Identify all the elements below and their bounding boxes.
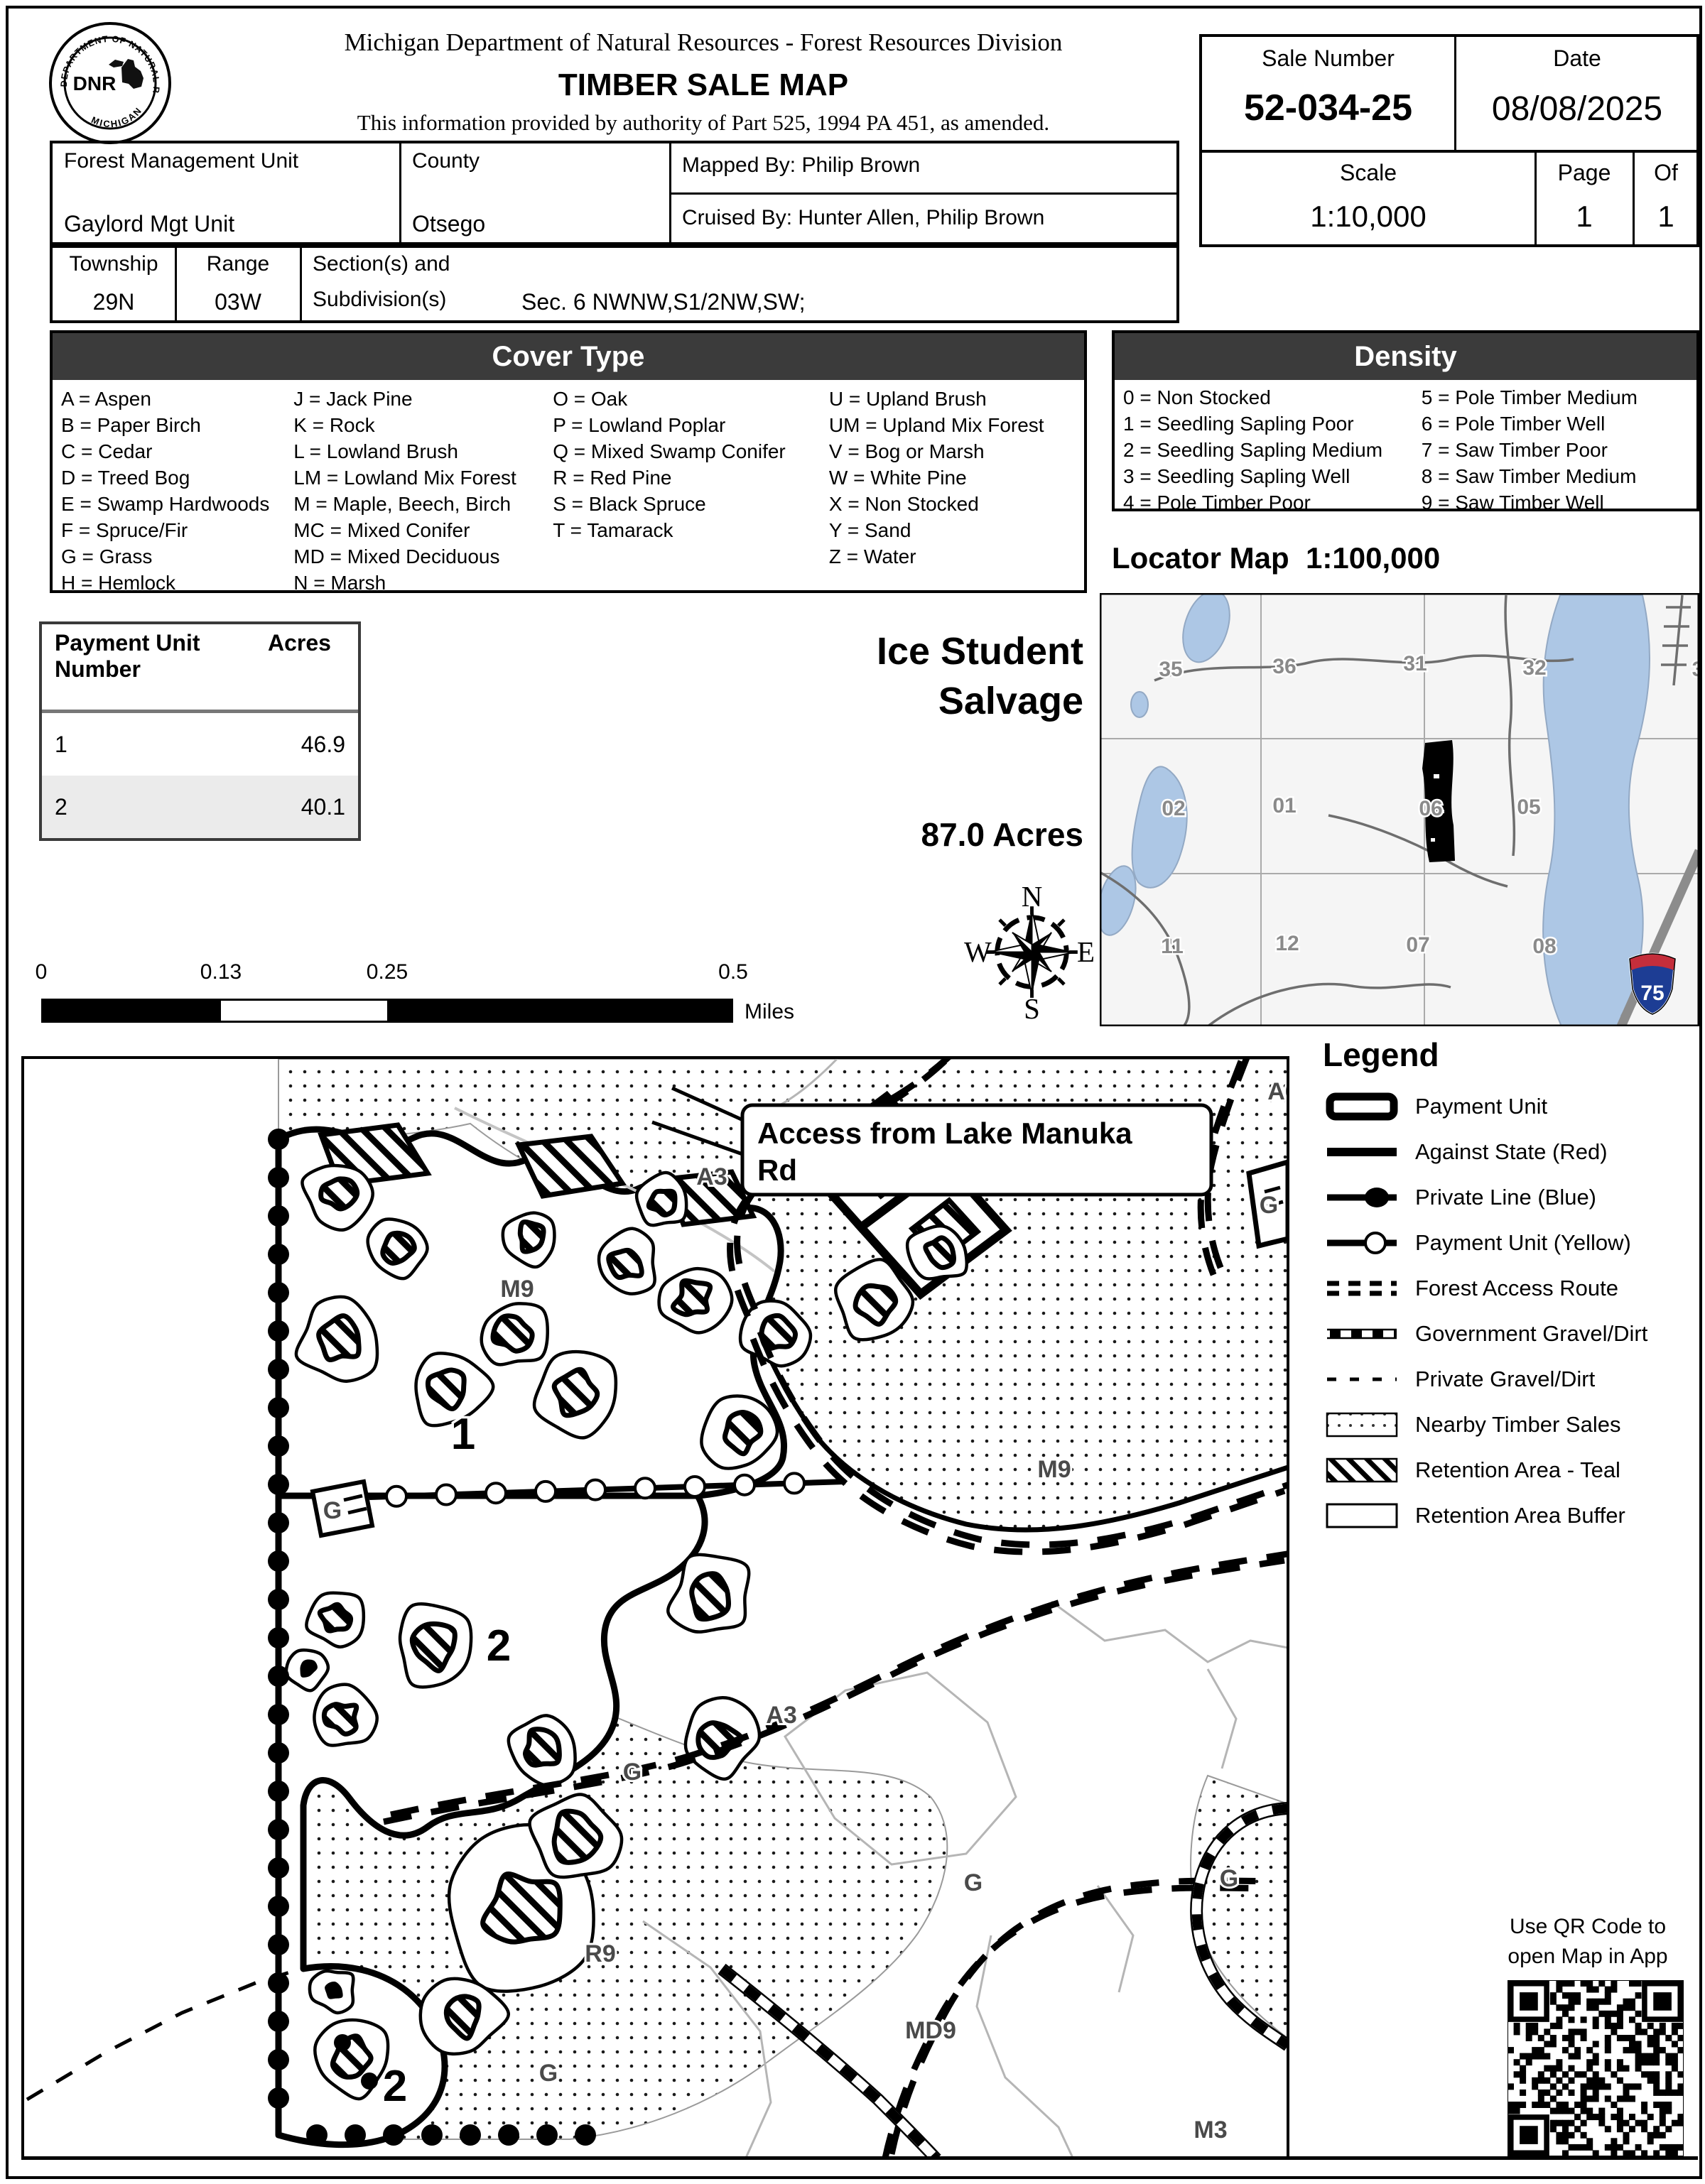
payment-unit-yellow-icon [1323, 1227, 1401, 1259]
map-label: M3 [1193, 2117, 1227, 2144]
svg-text:31: 31 [1403, 652, 1427, 675]
sale-title: Ice StudentSalvage [710, 626, 1083, 726]
mapped-by-value: Philip Brown [801, 153, 920, 177]
svg-text:35: 35 [1159, 658, 1182, 681]
private-line-icon [1323, 1182, 1401, 1213]
map-label: A6 [1267, 1078, 1289, 1105]
svg-text:06: 06 [1419, 797, 1442, 820]
page-value: 1 [1536, 200, 1633, 234]
township-label: Township [53, 252, 175, 276]
legend-item-payment-unit-yellow: Payment Unit (Yellow) [1323, 1220, 1699, 1266]
svg-text:75: 75 [1640, 982, 1664, 1005]
payment-unit-table: Payment UnitNumber Acres 146.9240.1 [39, 621, 361, 841]
private-gravel-icon [1323, 1364, 1401, 1395]
legend-item-forest-access: Forest Access Route [1323, 1266, 1699, 1311]
density-header: Density [1115, 333, 1696, 380]
svg-text:DNR: DNR [73, 72, 117, 94]
sale-number-value: 52-034-25 [1202, 87, 1454, 129]
date-value: 08/08/2025 [1456, 89, 1698, 129]
agency-line: Michigan Department of Natural Resources… [213, 28, 1193, 57]
of-label: Of [1634, 160, 1698, 186]
cover-type-col-3: O = OakP = Lowland PoplarQ = Mixed Swamp… [553, 386, 829, 596]
density-col-1: 0 = Non Stocked1 = Seedling Sapling Poor… [1123, 384, 1422, 516]
retention-teal-icon [1323, 1455, 1401, 1486]
legend-item-retention-buffer: Retention Area Buffer [1323, 1493, 1699, 1538]
cover-type-header: Cover Type [53, 333, 1084, 380]
density-col-2: 5 = Pole Timber Medium6 = Pole Timber We… [1422, 384, 1688, 516]
cruised-by-label: Cruised By: [682, 206, 792, 229]
svg-text:07: 07 [1406, 933, 1429, 957]
nearby-timber-icon [1323, 1409, 1401, 1440]
svg-text:11: 11 [1161, 935, 1184, 958]
svg-text:05: 05 [1517, 795, 1540, 819]
compass-rose: N E S W [963, 883, 1101, 1021]
map-legend: Legend Payment UnitAgainst State (Red)Pr… [1323, 1036, 1699, 1538]
bottom-rule [21, 2156, 1698, 2160]
authority-line: This information provided by authority o… [213, 110, 1193, 136]
legend-title: Legend [1323, 1036, 1699, 1074]
cover-type-table: Cover Type A = AspenB = Paper BirchC = C… [50, 330, 1087, 593]
date-label: Date [1456, 45, 1698, 72]
dnr-logo: DEPARTMENT OF NATURAL RESOURCES MICHIGAN… [39, 16, 181, 151]
sections-label-1: Section(s) and [313, 252, 450, 276]
legend-item-government-gravel: Government Gravel/Dirt [1323, 1311, 1699, 1357]
legend-item-against-state: Against State (Red) [1323, 1129, 1699, 1175]
map-label: G [323, 1497, 342, 1524]
payment-unit-icon [1323, 1091, 1401, 1122]
map-label: 2 [487, 1621, 511, 1670]
map-label: G [1220, 1865, 1238, 1892]
township-value: 29N [53, 289, 175, 315]
legend-item-nearby-timber: Nearby Timber Sales [1323, 1402, 1699, 1447]
map-label: MD9 [905, 2017, 956, 2044]
range-value: 03W [176, 289, 300, 315]
svg-text:S: S [1024, 993, 1040, 1021]
map-label: M9 [1037, 1456, 1071, 1483]
map-label: G [964, 1869, 983, 1896]
fmu-label: Forest Management Unit [64, 149, 298, 173]
svg-text:01: 01 [1272, 794, 1296, 817]
svg-text:N: N [1022, 883, 1043, 913]
svg-text:Access from Lake Manuka: Access from Lake Manuka [757, 1117, 1132, 1150]
map-label: A3 [766, 1702, 796, 1729]
cover-type-col-2: J = Jack PineK = RockL = Lowland BrushLM… [293, 386, 553, 596]
svg-text:02: 02 [1162, 797, 1185, 820]
svg-text:E: E [1077, 936, 1095, 968]
legend-item-retention-teal: Retention Area - Teal [1323, 1447, 1699, 1493]
retention-buffer-icon [1323, 1500, 1401, 1531]
svg-text:32: 32 [1522, 656, 1546, 680]
government-gravel-icon [1323, 1318, 1401, 1349]
map-label: G [1260, 1192, 1278, 1219]
sale-number-label: Sale Number [1202, 45, 1454, 72]
scale-page-table: Scale 1:10,000 Page 1 Of 1 [1199, 150, 1699, 247]
fmu-table: Forest Management Unit Gaylord Mgt Unit … [50, 141, 1179, 245]
forest-access-icon [1323, 1273, 1401, 1304]
sale-date-table: Sale Number 52-034-25 Date 08/08/2025 [1199, 34, 1699, 153]
map-label: 1 [451, 1410, 475, 1459]
legend-item-private-gravel: Private Gravel/Dirt [1323, 1357, 1699, 1402]
qr-caption: Use QR Code toopen Map in App [1481, 1912, 1694, 1972]
cruised-by-value: Hunter Allen, Philip Brown [798, 206, 1044, 229]
scale-value: 1:10,000 [1202, 200, 1534, 234]
total-acres: 87.0 Acres [710, 815, 1083, 854]
sections-value: Sec. 6 NWNW,S1/2NW,SW; [521, 289, 805, 315]
svg-text:08: 08 [1532, 935, 1556, 958]
scale-label: Scale [1202, 160, 1534, 186]
against-state-icon [1323, 1136, 1401, 1168]
county-value: Otsego [412, 211, 485, 237]
cover-type-col-4: U = Upland BrushUM = Upland Mix ForestV … [829, 386, 1076, 596]
page-title: TIMBER SALE MAP [213, 67, 1193, 103]
timber-sale-main-map: A6A3M9M91GG2A3GGGR9MD9G2M3 Access from L… [21, 1056, 1289, 2159]
of-value: 1 [1634, 200, 1698, 234]
legend-item-private-line: Private Line (Blue) [1323, 1175, 1699, 1220]
county-label: County [412, 149, 480, 173]
payment-row: 146.9 [42, 713, 358, 776]
page-label: Page [1536, 160, 1633, 186]
cover-type-col-1: A = AspenB = Paper BirchC = CedarD = Tre… [61, 386, 293, 596]
svg-text:12: 12 [1275, 932, 1299, 955]
sections-label-2: Subdivision(s) [313, 288, 446, 312]
mapped-by-label: Mapped By: [682, 153, 796, 177]
timber-sale-map-page: DEPARTMENT OF NATURAL RESOURCES MICHIGAN… [0, 0, 1705, 2184]
map-label: G [623, 1759, 642, 1786]
range-label: Range [176, 252, 300, 276]
density-table: Density 0 = Non Stocked1 = Seedling Sapl… [1112, 330, 1699, 511]
svg-text:Rd: Rd [757, 1153, 797, 1187]
svg-text:36: 36 [1272, 655, 1296, 678]
map-label: 2 [383, 2062, 407, 2111]
payment-row: 240.1 [42, 776, 358, 838]
map-label: A3 [696, 1163, 727, 1190]
locator-map: 3536313230201060511120708 75 [1100, 593, 1699, 1026]
map-label: G [539, 2060, 558, 2087]
map-label: M9 [500, 1276, 534, 1303]
fmu-value: Gaylord Mgt Unit [64, 211, 234, 237]
legend-item-payment-unit: Payment Unit [1323, 1084, 1699, 1129]
township-table: Township 29N Range 03W Section(s) and Su… [50, 245, 1179, 323]
locator-title: Locator Map 1:100,000 [1112, 541, 1440, 575]
svg-text:W: W [964, 936, 992, 968]
map-label: R9 [585, 1940, 615, 1967]
qr-code [1508, 1980, 1684, 2156]
